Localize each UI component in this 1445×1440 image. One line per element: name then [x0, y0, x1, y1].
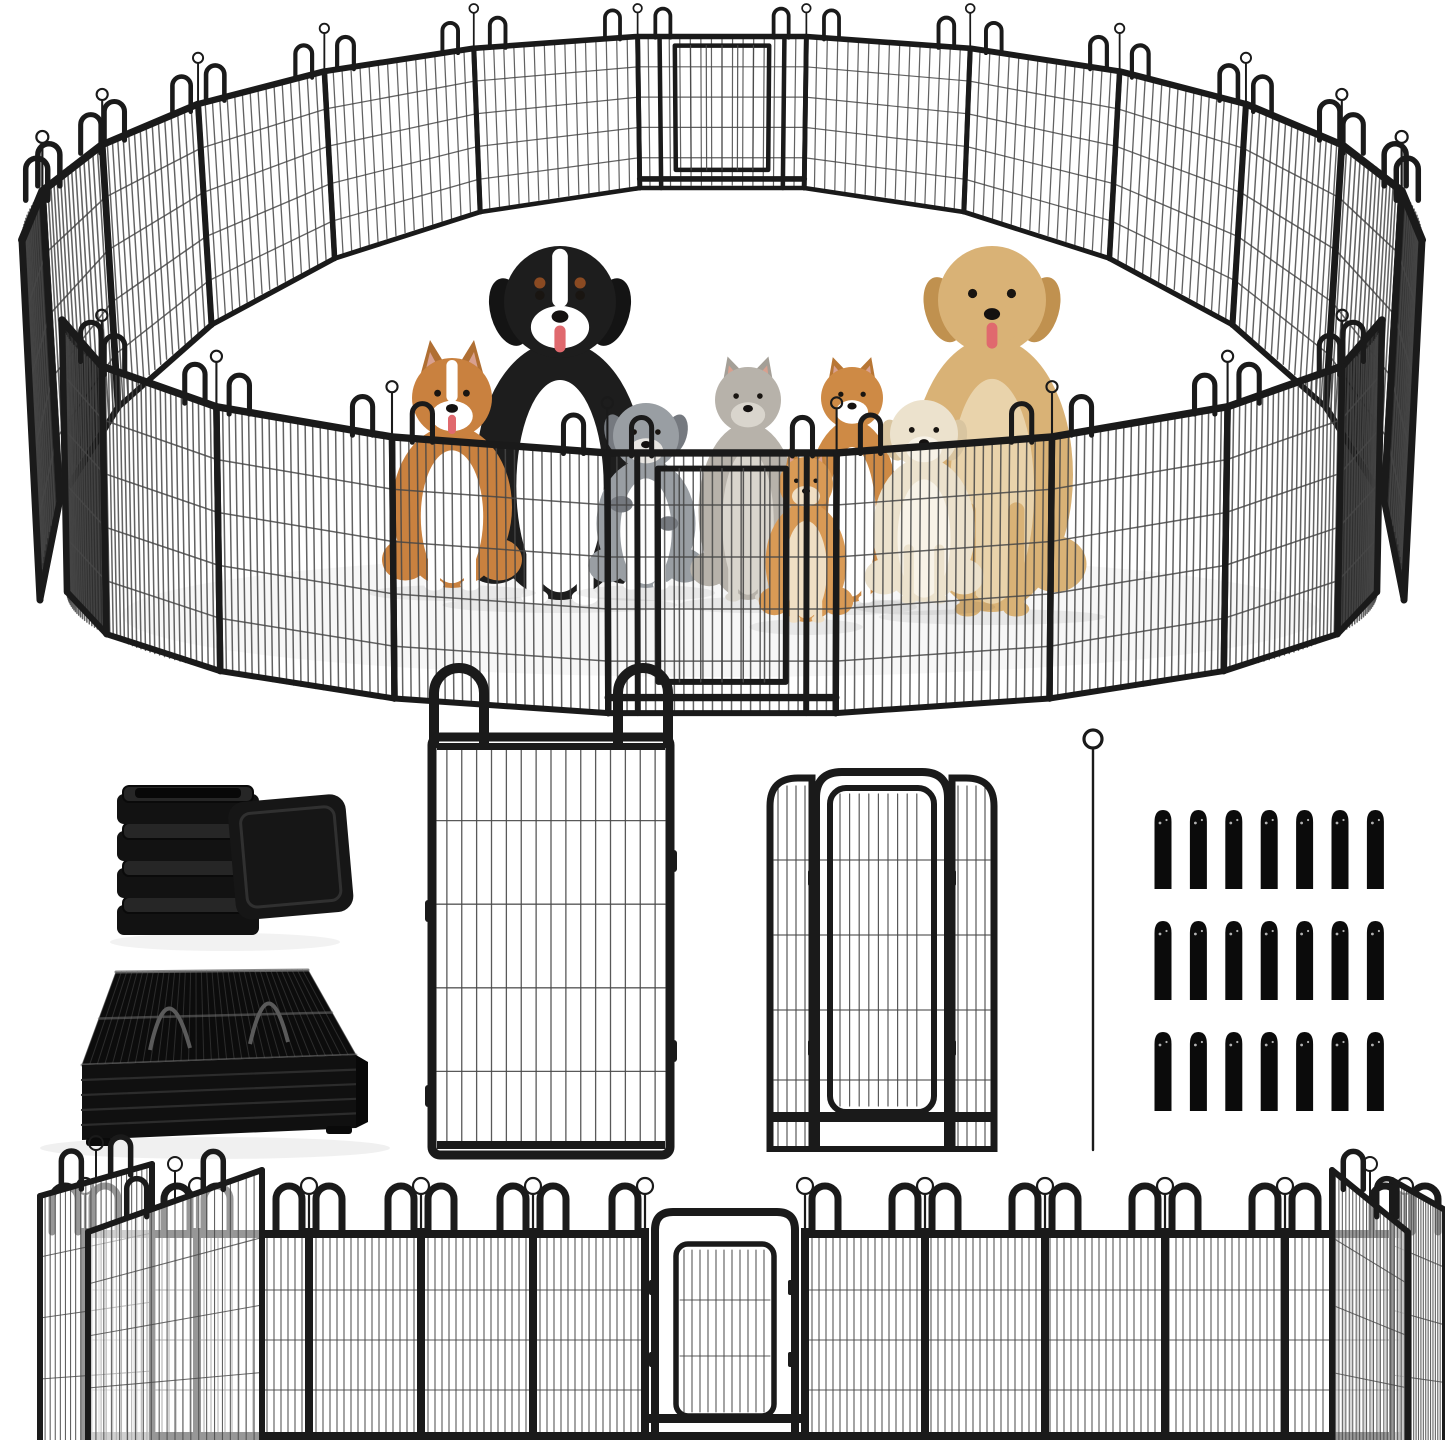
circular-playpen: [22, 4, 1422, 715]
components-row: [40, 668, 1384, 1159]
stake-cap: [1332, 810, 1349, 889]
stake-cap: [1190, 921, 1207, 1000]
stake-cap: [1261, 921, 1278, 1000]
stake-cap: [1155, 1032, 1172, 1111]
stake-cap: [1155, 810, 1172, 889]
front-panels-mesh-panel: [1337, 320, 1382, 634]
right-angled-panels: [1332, 1151, 1445, 1440]
bottom-panel-row: [40, 1136, 1445, 1440]
stake-cap: [1190, 1032, 1207, 1111]
back-panels-mesh-panel: [1109, 71, 1246, 325]
pet-playpen-product-photo: [0, 0, 1445, 1440]
stake-cap: [1261, 810, 1278, 889]
back-panels-mesh-panel: [804, 36, 970, 211]
folded-panels-component: [40, 970, 390, 1159]
stake-cap: [1225, 921, 1242, 1000]
stake-cap: [1190, 810, 1207, 889]
ground-stake-component: [1084, 730, 1102, 1150]
single-panel-component: [425, 668, 677, 1155]
stake-cap: [1296, 921, 1313, 1000]
back-panels-mesh-panel: [474, 36, 640, 211]
stake-cap: [1296, 1032, 1313, 1111]
stake-cap: [1296, 810, 1313, 889]
stake-cap: [1225, 1032, 1242, 1111]
angled-panel: [1332, 1151, 1408, 1440]
back-panels-mesh-panel: [324, 48, 480, 258]
stake-cap: [1332, 921, 1349, 1000]
left-angled-panels: [40, 1136, 262, 1440]
back-panels-door-panel: [638, 35, 807, 188]
stake-cap: [1225, 810, 1242, 889]
end-cap-front: [227, 793, 355, 921]
stake-cap: [1332, 1032, 1349, 1111]
playpen-scene-canvas: [0, 0, 1445, 1440]
stake-cap: [1367, 810, 1384, 889]
door-panel-component: [770, 772, 994, 1152]
stake-caps-grid: [1155, 810, 1384, 1111]
stake-cap: [1155, 921, 1172, 1000]
back-panels-mesh-panel: [964, 48, 1120, 258]
stake-cap: [1261, 1032, 1278, 1111]
stake-cap: [1367, 921, 1384, 1000]
bottom-row-door: [647, 1212, 803, 1440]
end-caps-component: [110, 786, 355, 951]
stake-cap: [1367, 1032, 1384, 1111]
back-panels-mesh-panel: [198, 71, 335, 325]
